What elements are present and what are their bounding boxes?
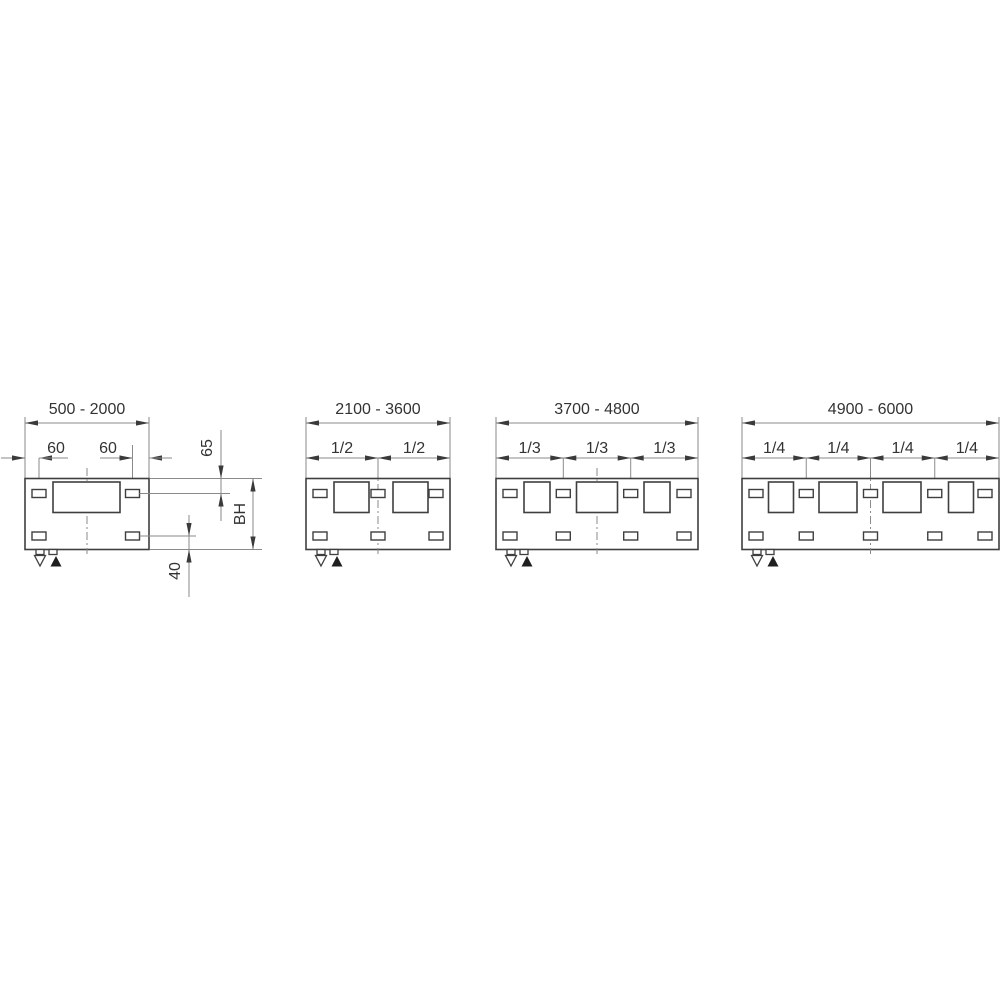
dimBH-label: BH <box>232 503 249 525</box>
down-triangle-symbol <box>35 556 46 567</box>
connection-tab <box>766 550 774 555</box>
segment-dim-arrow-right <box>437 455 450 460</box>
bracket-slot-top <box>126 490 140 498</box>
segment-dim-arrow-right <box>858 455 871 460</box>
segment-dim-arrow-left <box>742 455 755 460</box>
range-dim-arrow-left <box>742 420 755 425</box>
segment-dim-arrow-right <box>618 455 631 460</box>
range-label: 2100 - 3600 <box>335 401 421 418</box>
segment-dim-arrow-right <box>793 455 806 460</box>
connection-tab <box>317 550 325 555</box>
radiator-mounting-diagram: 500 - 200060602100 - 36001/21/23700 - 48… <box>0 0 1000 1000</box>
mounting-plate <box>393 482 428 513</box>
bracket-slot-bottom <box>429 532 443 540</box>
range-dim-arrow-left <box>496 420 509 425</box>
up-triangle-symbol <box>51 556 62 567</box>
up-triangle-symbol <box>768 556 779 567</box>
bracket-slot-top <box>799 490 813 498</box>
segment-dim-arrow-left <box>378 455 391 460</box>
down-triangle-symbol <box>506 556 517 567</box>
mounting-plate <box>334 482 369 513</box>
dim65-label: 65 <box>199 439 216 457</box>
bracket-slot-bottom <box>799 532 813 540</box>
bracket-slot-top <box>313 490 327 498</box>
range-label: 500 - 2000 <box>49 401 126 418</box>
bracket-slot-bottom <box>126 532 140 540</box>
dim65-arrow <box>218 494 223 507</box>
segment-label: 1/4 <box>956 440 978 457</box>
mounting-plate <box>53 482 120 513</box>
range-dim-arrow-left <box>306 420 319 425</box>
segment-label: 1/2 <box>403 440 425 457</box>
bracket-slot-bottom <box>864 532 878 540</box>
bracket-slot-bottom <box>556 532 570 540</box>
segment-dim-arrow-left <box>631 455 644 460</box>
bracket-slot-top <box>371 490 385 498</box>
segment-label: 1/2 <box>331 440 353 457</box>
mounting-plate <box>769 482 794 513</box>
offset-dim-arrow <box>120 455 133 460</box>
dim40-arrow <box>186 523 191 536</box>
up-triangle-symbol <box>522 556 533 567</box>
bracket-slot-top <box>928 490 942 498</box>
technical-drawing-canvas: 500 - 200060602100 - 36001/21/23700 - 48… <box>0 0 1000 1000</box>
bracket-slot-bottom <box>503 532 517 540</box>
segment-dim-arrow-right <box>986 455 999 460</box>
connection-tab <box>507 550 515 555</box>
segment-dim-arrow-right <box>685 455 698 460</box>
connection-tab <box>330 550 338 555</box>
segment-label: 1/4 <box>892 440 914 457</box>
segment-label: 1/4 <box>763 440 785 457</box>
mounting-plate <box>883 482 921 513</box>
range-dim-arrow-right <box>685 420 698 425</box>
bracket-slot-top <box>624 490 638 498</box>
bracket-slot-bottom <box>677 532 691 540</box>
segment-dim-arrow-left <box>935 455 948 460</box>
segment-dim-arrow-right <box>365 455 378 460</box>
mounting-plate <box>644 482 670 513</box>
mounting-plate <box>524 482 550 513</box>
dim65-arrow <box>218 466 223 479</box>
segment-label: 1/3 <box>519 440 541 457</box>
bracket-slot-top <box>677 490 691 498</box>
connection-tab <box>49 550 57 555</box>
dimBH-arrow <box>250 479 255 492</box>
range-dim-arrow-right <box>437 420 450 425</box>
bracket-slot-bottom <box>371 532 385 540</box>
connection-tab <box>36 550 44 555</box>
down-triangle-symbol <box>316 556 327 567</box>
down-triangle-symbol <box>752 556 763 567</box>
range-dim-arrow-left <box>25 420 38 425</box>
segment-label: 1/3 <box>653 440 675 457</box>
bracket-offset-label: 60 <box>47 440 65 457</box>
range-dim-arrow-right <box>986 420 999 425</box>
mounting-plate <box>819 482 857 513</box>
segment-dim-arrow-left <box>496 455 509 460</box>
segment-dim-arrow-right <box>550 455 563 460</box>
mounting-plate <box>949 482 974 513</box>
dimBH-arrow <box>250 537 255 550</box>
segment-dim-arrow-left <box>871 455 884 460</box>
bracket-slot-bottom <box>624 532 638 540</box>
segment-label: 1/3 <box>586 440 608 457</box>
segment-dim-arrow-right <box>922 455 935 460</box>
range-label: 4900 - 6000 <box>828 401 914 418</box>
bracket-slot-bottom <box>928 532 942 540</box>
bracket-slot-bottom <box>978 532 992 540</box>
segment-dim-arrow-left <box>306 455 319 460</box>
bracket-slot-top <box>556 490 570 498</box>
connection-tab <box>753 550 761 555</box>
offset-dim-arrow <box>12 455 25 460</box>
mounting-plate <box>577 482 618 513</box>
bracket-slot-top <box>864 490 878 498</box>
bracket-slot-top <box>503 490 517 498</box>
bracket-slot-top <box>429 490 443 498</box>
bracket-slot-top <box>749 490 763 498</box>
dim40-arrow <box>186 550 191 563</box>
bracket-slot-bottom <box>32 532 46 540</box>
bracket-slot-bottom <box>749 532 763 540</box>
dim40-label: 40 <box>167 562 184 580</box>
connection-tab <box>520 550 528 555</box>
segment-label: 1/4 <box>827 440 849 457</box>
bracket-slot-top <box>978 490 992 498</box>
range-dim-arrow-right <box>136 420 149 425</box>
bracket-offset-label: 60 <box>99 440 117 457</box>
up-triangle-symbol <box>332 556 343 567</box>
segment-dim-arrow-left <box>806 455 819 460</box>
bracket-slot-top <box>32 490 46 498</box>
bracket-slot-bottom <box>313 532 327 540</box>
range-label: 3700 - 4800 <box>554 401 640 418</box>
segment-dim-arrow-left <box>563 455 576 460</box>
